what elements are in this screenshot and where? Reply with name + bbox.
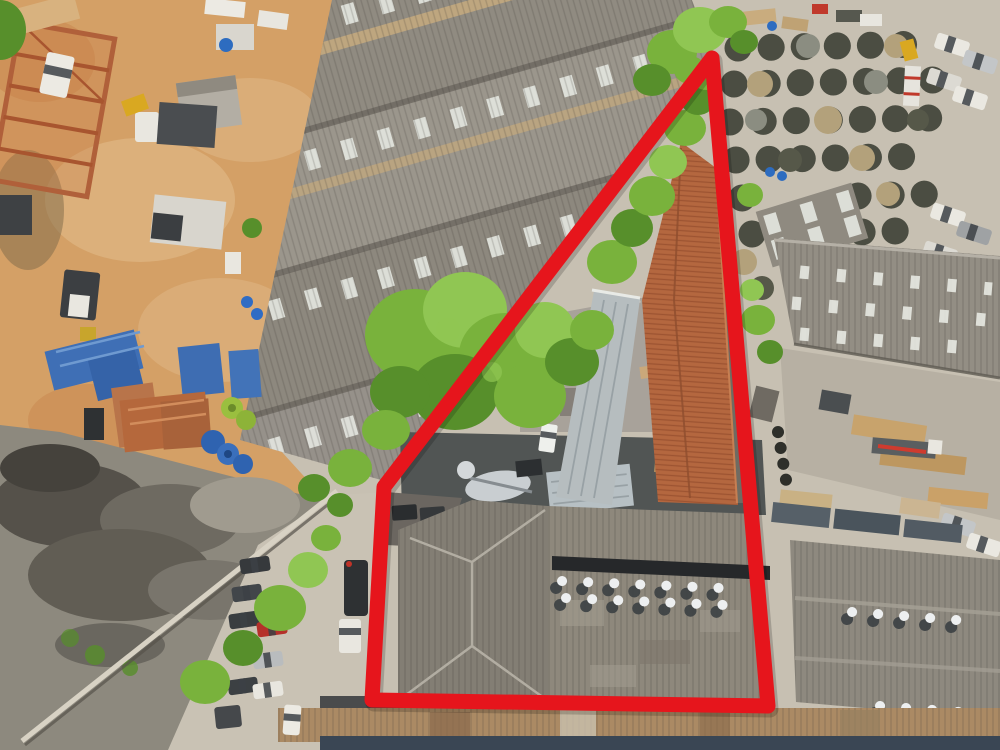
tree bbox=[61, 629, 79, 647]
property-warehouses bbox=[386, 492, 770, 702]
tree bbox=[757, 340, 783, 364]
machine-dark bbox=[0, 195, 32, 235]
engine-unit bbox=[515, 459, 543, 478]
white-car bbox=[225, 252, 241, 274]
yellow-box bbox=[80, 327, 96, 341]
parked-car bbox=[282, 704, 301, 735]
cable-reel-row bbox=[736, 156, 932, 160]
tree bbox=[730, 30, 758, 54]
parked-suv bbox=[344, 560, 368, 616]
service-truck bbox=[903, 66, 921, 107]
van-body bbox=[214, 705, 242, 730]
roof-corrugation bbox=[790, 540, 1000, 720]
blue-barrel bbox=[251, 308, 263, 320]
tree bbox=[223, 630, 263, 666]
tank-end bbox=[457, 461, 475, 479]
tree bbox=[740, 279, 764, 301]
truck-red-stripe bbox=[904, 78, 920, 79]
cable-reel bbox=[796, 34, 820, 58]
tree bbox=[629, 176, 675, 216]
roof-mottle bbox=[640, 640, 690, 664]
blue-barrel bbox=[767, 21, 777, 31]
crate bbox=[836, 10, 862, 22]
blue-barrel bbox=[241, 296, 253, 308]
tree bbox=[180, 660, 230, 704]
blue-barrel bbox=[765, 167, 775, 177]
right-middle-block bbox=[748, 238, 1000, 520]
cable-reel bbox=[849, 145, 875, 171]
truck-cab bbox=[135, 112, 159, 142]
navy-roof-strip bbox=[320, 736, 1000, 750]
truck-cab bbox=[927, 439, 942, 454]
parked-car bbox=[392, 504, 418, 521]
rust-patch bbox=[840, 710, 880, 738]
cable-reel bbox=[876, 182, 900, 206]
car-windshield bbox=[339, 628, 361, 635]
aerial-photo bbox=[0, 0, 1000, 750]
truck-cab bbox=[68, 294, 90, 318]
tree bbox=[362, 410, 410, 450]
truck-bed bbox=[157, 102, 218, 148]
parked-car bbox=[339, 619, 361, 653]
cable-reel bbox=[814, 106, 842, 134]
dark-truck bbox=[60, 269, 101, 321]
cable-reel bbox=[747, 71, 773, 97]
cable-reel bbox=[864, 70, 888, 94]
tree bbox=[298, 474, 330, 502]
charcoal-pile bbox=[0, 444, 100, 492]
coil-center bbox=[228, 404, 236, 412]
tree bbox=[85, 645, 105, 665]
sand-pile bbox=[190, 477, 300, 533]
tree-highlight bbox=[436, 318, 460, 342]
tree bbox=[741, 305, 775, 335]
rust-patch bbox=[430, 712, 470, 738]
cable-reel bbox=[907, 109, 929, 131]
truck-body bbox=[903, 66, 921, 107]
truck-red-stripe bbox=[904, 94, 920, 95]
tree bbox=[370, 366, 430, 418]
suv-taillight bbox=[346, 561, 352, 567]
parked-van bbox=[214, 705, 242, 730]
hose-coil-blue bbox=[233, 454, 253, 474]
car-windshield bbox=[283, 713, 300, 721]
red-machine bbox=[812, 4, 828, 14]
pipe-stack-blue bbox=[228, 349, 261, 399]
tree bbox=[633, 64, 671, 96]
flatbed-truck bbox=[150, 194, 227, 249]
hose-coil-green bbox=[236, 410, 256, 430]
car-body bbox=[392, 504, 418, 521]
blue-barrel bbox=[219, 38, 233, 52]
truck-hood bbox=[151, 213, 184, 242]
parked-car bbox=[84, 408, 104, 440]
pipe-stack-blue bbox=[178, 343, 225, 397]
tree bbox=[242, 218, 262, 238]
tree bbox=[328, 449, 372, 487]
cable-reel bbox=[745, 109, 767, 131]
tree bbox=[327, 493, 353, 517]
suv-body bbox=[344, 560, 368, 616]
blue-barrel bbox=[777, 171, 787, 181]
tree bbox=[570, 310, 614, 350]
roof-mottle bbox=[590, 665, 636, 687]
tree bbox=[737, 183, 763, 207]
car-body bbox=[339, 619, 361, 653]
cable-reel bbox=[778, 148, 802, 172]
tree bbox=[254, 585, 306, 631]
white-truck bbox=[860, 14, 882, 26]
tree bbox=[288, 552, 328, 588]
coil-center bbox=[224, 450, 232, 458]
tree bbox=[311, 525, 341, 551]
aerial-photo-canvas bbox=[0, 0, 1000, 750]
